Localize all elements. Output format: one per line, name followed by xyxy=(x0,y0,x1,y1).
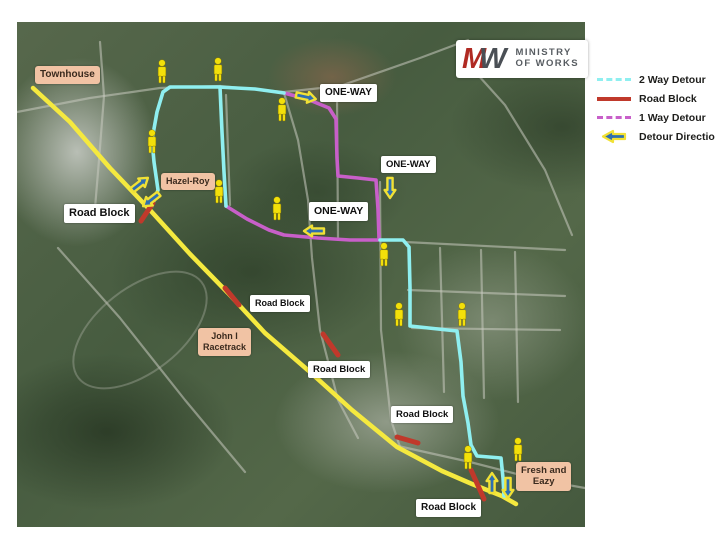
minor-road xyxy=(460,55,572,235)
one-way-detour-line-icon xyxy=(597,116,631,119)
map-routes-overlay xyxy=(17,22,585,527)
place-label: John I Racetrack xyxy=(198,328,251,356)
minor-road xyxy=(440,248,444,392)
map-legend: 2 Way Detour Road Block 1 Way Detour Det… xyxy=(597,72,715,148)
two-way-detour-line-icon xyxy=(597,78,631,81)
pedestrian-icon xyxy=(273,197,281,220)
road-block-marker xyxy=(225,288,239,305)
place-label: Townhouse xyxy=(35,66,100,84)
pedestrian-icon xyxy=(214,58,222,81)
detour-direction-arrow-icon xyxy=(487,473,498,493)
pedestrian-icon xyxy=(514,438,522,461)
page: { "logo": { "monogram_letters": ["M","W"… xyxy=(0,0,715,540)
pedestrian-icon xyxy=(464,446,472,469)
road-block-line-icon xyxy=(597,97,631,101)
map-annotation-label: ONE-WAY xyxy=(320,84,377,102)
minor-road xyxy=(405,242,565,250)
pedestrian-icon xyxy=(278,98,286,121)
map-annotation-label: Road Block xyxy=(416,499,481,517)
detour-direction-arrow-icon xyxy=(597,129,631,144)
legend-item-detour-direction: Detour Direction xyxy=(597,129,715,144)
detour-direction-arrow-icon xyxy=(385,178,396,198)
legend-item-one-way-detour: 1 Way Detour xyxy=(597,110,715,125)
pedestrian-icon xyxy=(458,303,466,326)
legend-item-road-block: Road Block xyxy=(597,91,715,106)
mow-monogram-icon: MW xyxy=(462,45,508,74)
pedestrian-icon xyxy=(158,60,166,83)
satellite-map: TownhouseHazel-RoyJohn I RacetrackFresh … xyxy=(17,22,585,527)
road-block-marker xyxy=(397,437,418,443)
logo-line2: OF WORKS xyxy=(516,59,579,70)
detour-direction-arrow-icon xyxy=(129,174,151,195)
map-annotation-label: ONE-WAY xyxy=(381,156,436,173)
place-label: Hazel-Roy xyxy=(161,173,215,190)
map-annotation-label: ONE-WAY xyxy=(309,202,368,221)
minor-road xyxy=(408,290,565,296)
map-annotation-label: Road Block xyxy=(64,204,135,223)
minor-road xyxy=(481,250,484,398)
minor-road xyxy=(515,252,518,402)
map-annotation-label: Road Block xyxy=(250,295,310,312)
logo-text: MINISTRY OF WORKS xyxy=(516,48,579,70)
ministry-of-works-logo: MW MINISTRY OF WORKS xyxy=(456,40,588,78)
pedestrian-icon xyxy=(380,243,388,266)
legend-item-two-way-detour: 2 Way Detour xyxy=(597,72,715,87)
pedestrian-icon xyxy=(395,303,403,326)
place-label: Fresh and Eazy xyxy=(516,462,571,491)
pedestrian-icon xyxy=(215,180,223,203)
minor-road xyxy=(284,93,358,438)
two-way-detour-route xyxy=(380,240,504,496)
map-annotation-label: Road Block xyxy=(391,406,453,423)
map-annotation-label: Road Block xyxy=(308,361,370,378)
detour-direction-arrow-icon xyxy=(304,226,324,237)
